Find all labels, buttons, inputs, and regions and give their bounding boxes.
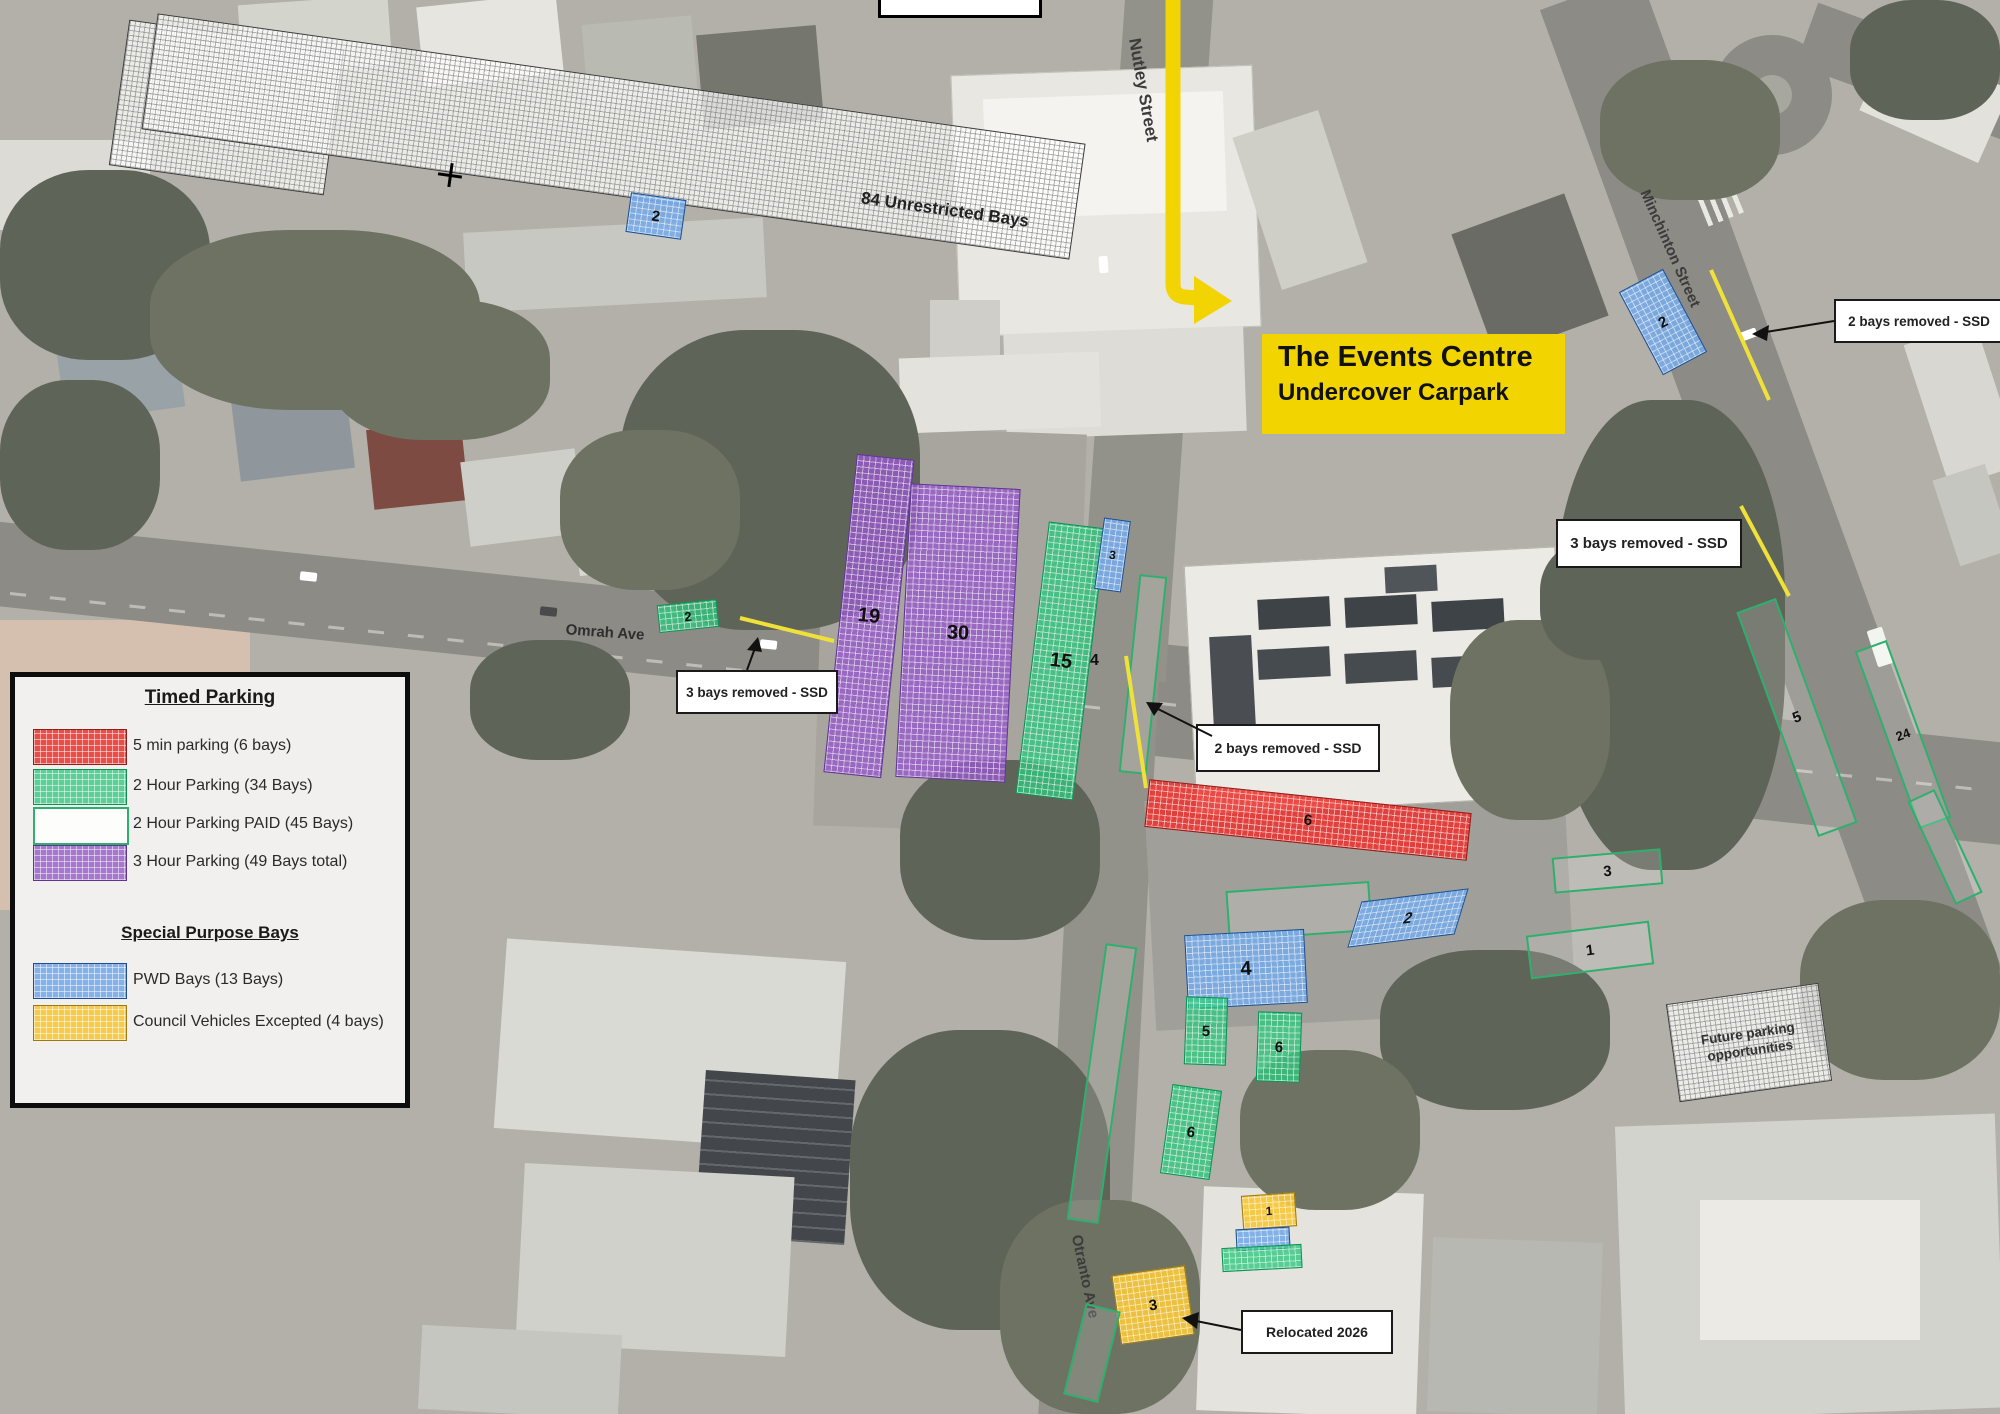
zone-count: 4 xyxy=(1240,957,1252,981)
trees xyxy=(1600,60,1780,200)
building xyxy=(1427,1237,1603,1414)
council-zone-relocated: 3 xyxy=(1111,1265,1194,1345)
zone-count: 30 xyxy=(946,621,969,645)
zone-count: 3 xyxy=(1108,548,1117,563)
pwd-zone-unrestricted: 2 xyxy=(625,192,686,239)
building xyxy=(1196,1186,1424,1414)
trees xyxy=(470,640,630,760)
legend-label-3hour: 3 Hour Parking (49 Bays total) xyxy=(133,844,399,880)
zone-count: 5 xyxy=(1790,708,1804,727)
parking-zone-paid: 3 xyxy=(1552,848,1664,893)
legend-swatch-council xyxy=(33,1005,127,1041)
zone-count: 15 xyxy=(1049,648,1074,674)
callout-omrah: 3 bays removed - SSD xyxy=(676,670,838,714)
legend-label-pwd: PWD Bays (13 Bays) xyxy=(133,962,399,998)
future-parking-label: Future parking opportunities xyxy=(1671,1011,1827,1073)
legend-label-5min: 5 min parking (6 bays) xyxy=(133,728,399,764)
legend-label-council: Council Vehicles Excepted (4 bays) xyxy=(133,1004,399,1040)
zone-count: 19 xyxy=(857,603,882,628)
legend: Timed Parking 5 min parking (6 bays) 2 H… xyxy=(10,672,410,1108)
solar-panels xyxy=(1384,565,1437,594)
legend-swatch-5min xyxy=(33,729,127,765)
events-centre-title: The Events Centre xyxy=(1278,341,1565,374)
legend-label-2hour-paid: 2 Hour Parking PAID (45 Bays) xyxy=(133,806,399,842)
council-zone: 1 xyxy=(1241,1192,1297,1230)
callout-minchinton-mid: 3 bays removed - SSD xyxy=(1556,519,1742,568)
solar-panels xyxy=(1344,594,1417,628)
legend-swatch-2hour xyxy=(33,769,127,805)
solar-panels xyxy=(1344,650,1417,684)
parking-zone-2hour: 5 xyxy=(1184,996,1228,1065)
callout-nutley: 2 bays removed - SSD xyxy=(1196,724,1380,772)
callout-relocated: Relocated 2026 xyxy=(1241,1310,1393,1354)
solar-panels xyxy=(1257,646,1330,680)
zone-count-paid-nutley: 4 xyxy=(1090,652,1099,670)
car xyxy=(760,639,778,650)
trees xyxy=(1800,900,2000,1080)
trees xyxy=(1850,0,2000,120)
zone-count: 5 xyxy=(1202,1022,1211,1039)
car xyxy=(540,606,558,617)
zone-count: 2 xyxy=(684,608,693,624)
zone-count: 3 xyxy=(1603,862,1613,880)
legend-swatch-pwd xyxy=(33,963,127,999)
parking-zone-3hour: 30 xyxy=(895,483,1020,782)
parking-zone-2hour: 6 xyxy=(1160,1084,1222,1180)
zone-count: 3 xyxy=(1148,1296,1159,1314)
zone-count: 24 xyxy=(1894,725,1913,744)
parking-zone-2hour-small xyxy=(1221,1244,1302,1272)
trees xyxy=(560,430,740,590)
trees xyxy=(1380,950,1610,1110)
warehouse xyxy=(418,1325,622,1414)
events-centre-subtitle: Undercover Carpark xyxy=(1278,379,1565,407)
building xyxy=(1904,322,2000,488)
building xyxy=(899,352,1101,434)
car xyxy=(300,571,318,582)
long-building xyxy=(463,217,767,313)
legend-swatch-2hour-paid xyxy=(33,807,129,845)
zone-count: 1 xyxy=(1585,941,1595,959)
legend-swatch-3hour xyxy=(33,845,127,881)
zone-count: 2 xyxy=(1655,313,1670,332)
future-parking-box: Future parking opportunities xyxy=(1666,983,1832,1102)
legend-label-2hour: 2 Hour Parking (34 Bays) xyxy=(133,768,399,804)
trees xyxy=(0,380,160,550)
zone-count: 2 xyxy=(651,207,662,225)
warehouse xyxy=(515,1163,794,1357)
zone-count: 1 xyxy=(1265,1204,1273,1218)
crosshair-icon xyxy=(436,161,463,188)
car xyxy=(1098,256,1108,274)
zone-count: 6 xyxy=(1275,1038,1284,1055)
zone-count: 2 xyxy=(1401,909,1415,928)
solar-panels xyxy=(1257,596,1330,630)
trees xyxy=(330,300,550,440)
cutoff-label-box xyxy=(878,0,1042,18)
building-dark xyxy=(1451,193,1608,356)
callout-minchinton-top: 2 bays removed - SSD xyxy=(1834,299,2000,343)
zone-count: 6 xyxy=(1186,1123,1197,1141)
parking-map: 84 Unrestricted Bays 2 19 30 15 3 4 6 3 … xyxy=(0,0,2000,1414)
legend-special-title: Special Purpose Bays xyxy=(15,923,405,943)
zone-count: 6 xyxy=(1303,811,1313,829)
building xyxy=(1932,464,2000,567)
parking-zone-2hour: 6 xyxy=(1256,1011,1302,1082)
building xyxy=(1700,1200,1920,1340)
legend-timed-title: Timed Parking xyxy=(15,687,405,709)
events-centre-label: The Events Centre Undercover Carpark xyxy=(1262,334,1565,434)
